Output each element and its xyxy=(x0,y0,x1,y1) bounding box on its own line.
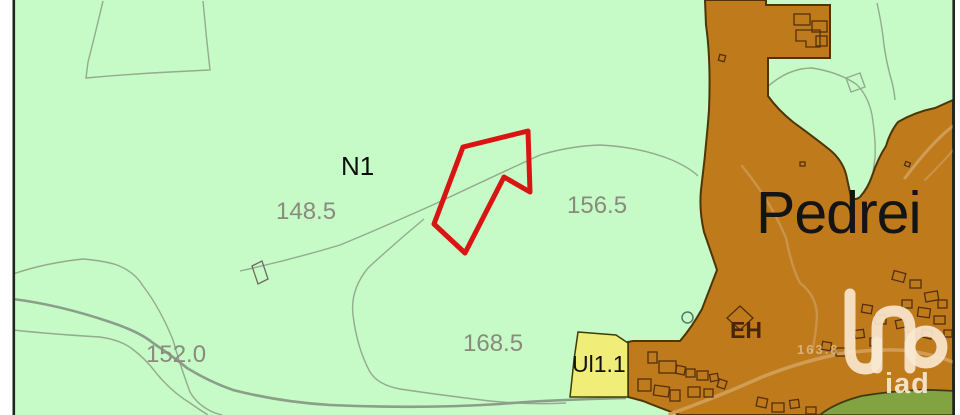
map-border-left xyxy=(13,0,16,415)
iad-watermark-text: iad xyxy=(885,370,930,399)
contour-label-148-5: 148.5 xyxy=(276,200,336,224)
map-margin-left xyxy=(0,0,13,415)
map-border-right xyxy=(952,0,955,415)
contour-label-168-5: 168.5 xyxy=(463,332,523,356)
map-viewport: N1 148.5 156.5 168.5 152.0 EH Ul1.1 Pedr… xyxy=(0,0,960,415)
map-margin-right xyxy=(955,0,960,415)
contour-label-152-0: 152.0 xyxy=(146,343,206,367)
zone-label-n1: N1 xyxy=(341,153,374,179)
road-elevation-label: 163.8 xyxy=(797,343,840,356)
contour-label-156-5: 156.5 xyxy=(567,194,627,218)
zone-label-ul1-1: Ul1.1 xyxy=(572,353,626,376)
zone-label-eh: EH xyxy=(730,319,762,342)
town-label-pedreira: Pedrei xyxy=(756,184,921,243)
